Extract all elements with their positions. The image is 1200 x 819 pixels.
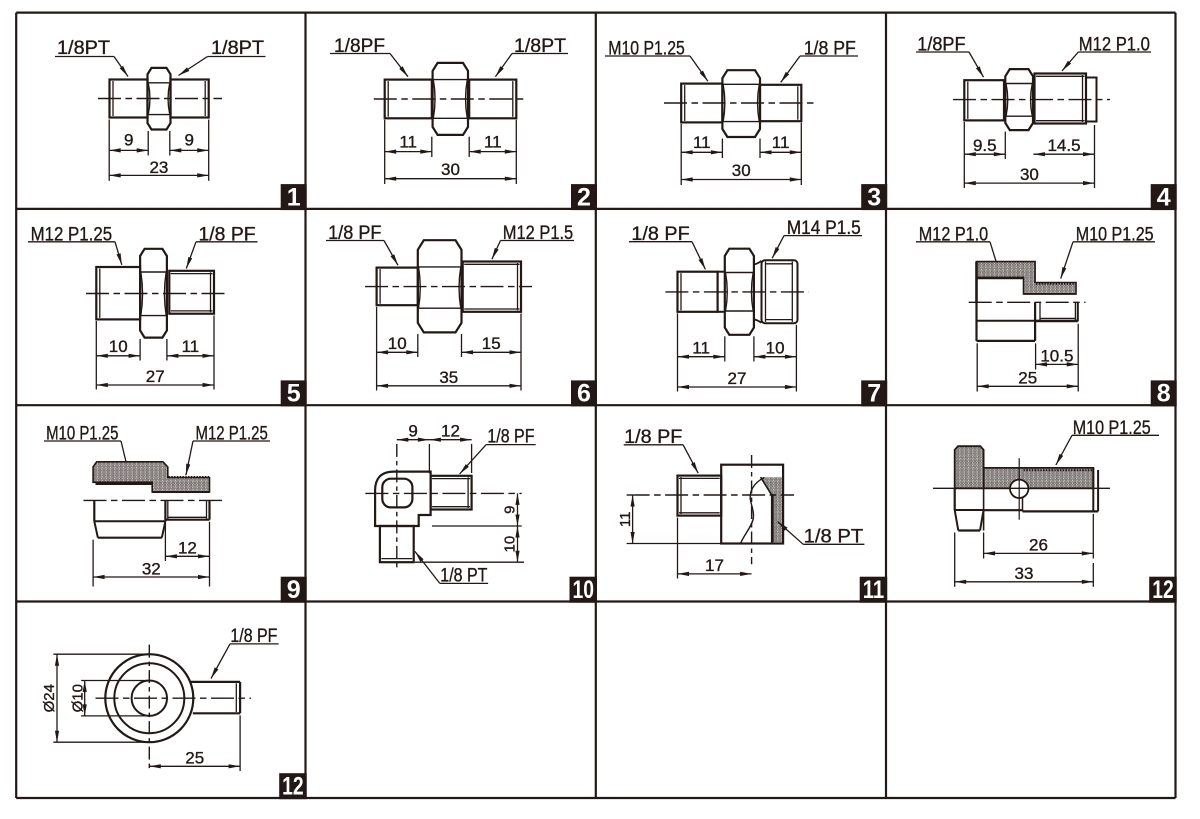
svg-text:27: 27 [146,367,165,386]
svg-text:10: 10 [766,339,785,358]
svg-text:11: 11 [863,576,885,604]
svg-text:9: 9 [184,131,193,150]
svg-text:5: 5 [287,380,301,408]
svg-text:27: 27 [728,369,747,388]
svg-text:12: 12 [178,538,197,557]
svg-text:11: 11 [693,133,711,152]
svg-text:10: 10 [109,337,128,356]
svg-text:2: 2 [577,183,591,211]
svg-text:11: 11 [399,132,417,151]
svg-text:7: 7 [867,380,881,408]
svg-text:14.5: 14.5 [1047,136,1080,155]
svg-text:11: 11 [182,337,200,356]
svg-text:26: 26 [1029,535,1048,554]
svg-text:11: 11 [484,132,502,151]
svg-text:30: 30 [1020,165,1039,184]
svg-text:17: 17 [705,556,724,575]
svg-text:9: 9 [287,576,301,604]
svg-text:10: 10 [388,334,407,353]
svg-text:9: 9 [408,422,417,441]
svg-text:10: 10 [502,536,519,553]
svg-text:25: 25 [1018,368,1037,387]
svg-text:Ø10: Ø10 [69,684,86,712]
svg-text:3: 3 [867,183,881,211]
svg-text:12: 12 [1152,576,1174,604]
svg-text:11: 11 [617,512,634,528]
svg-text:9: 9 [124,131,133,150]
svg-text:11: 11 [772,133,790,152]
svg-text:32: 32 [142,560,161,579]
svg-text:Ø24: Ø24 [41,684,58,712]
svg-text:6: 6 [577,380,591,408]
svg-text:1/8PT: 1/8PT [57,37,110,59]
svg-text:23: 23 [149,158,168,177]
svg-text:12: 12 [441,422,460,441]
svg-text:9: 9 [502,506,519,514]
svg-text:30: 30 [732,161,751,180]
svg-text:12: 12 [282,772,304,800]
svg-text:35: 35 [439,368,458,387]
svg-text:1: 1 [287,183,301,211]
svg-text:1/8PT: 1/8PT [211,37,264,59]
svg-text:25: 25 [185,748,204,767]
svg-text:8: 8 [1157,380,1171,408]
svg-text:10.5: 10.5 [1040,347,1073,366]
svg-text:11: 11 [692,339,710,358]
svg-text:15: 15 [482,334,501,353]
svg-text:9.5: 9.5 [973,136,997,155]
svg-text:4: 4 [1157,183,1171,211]
svg-text:10: 10 [572,576,594,604]
svg-text:30: 30 [441,160,460,179]
svg-text:33: 33 [1015,564,1034,583]
